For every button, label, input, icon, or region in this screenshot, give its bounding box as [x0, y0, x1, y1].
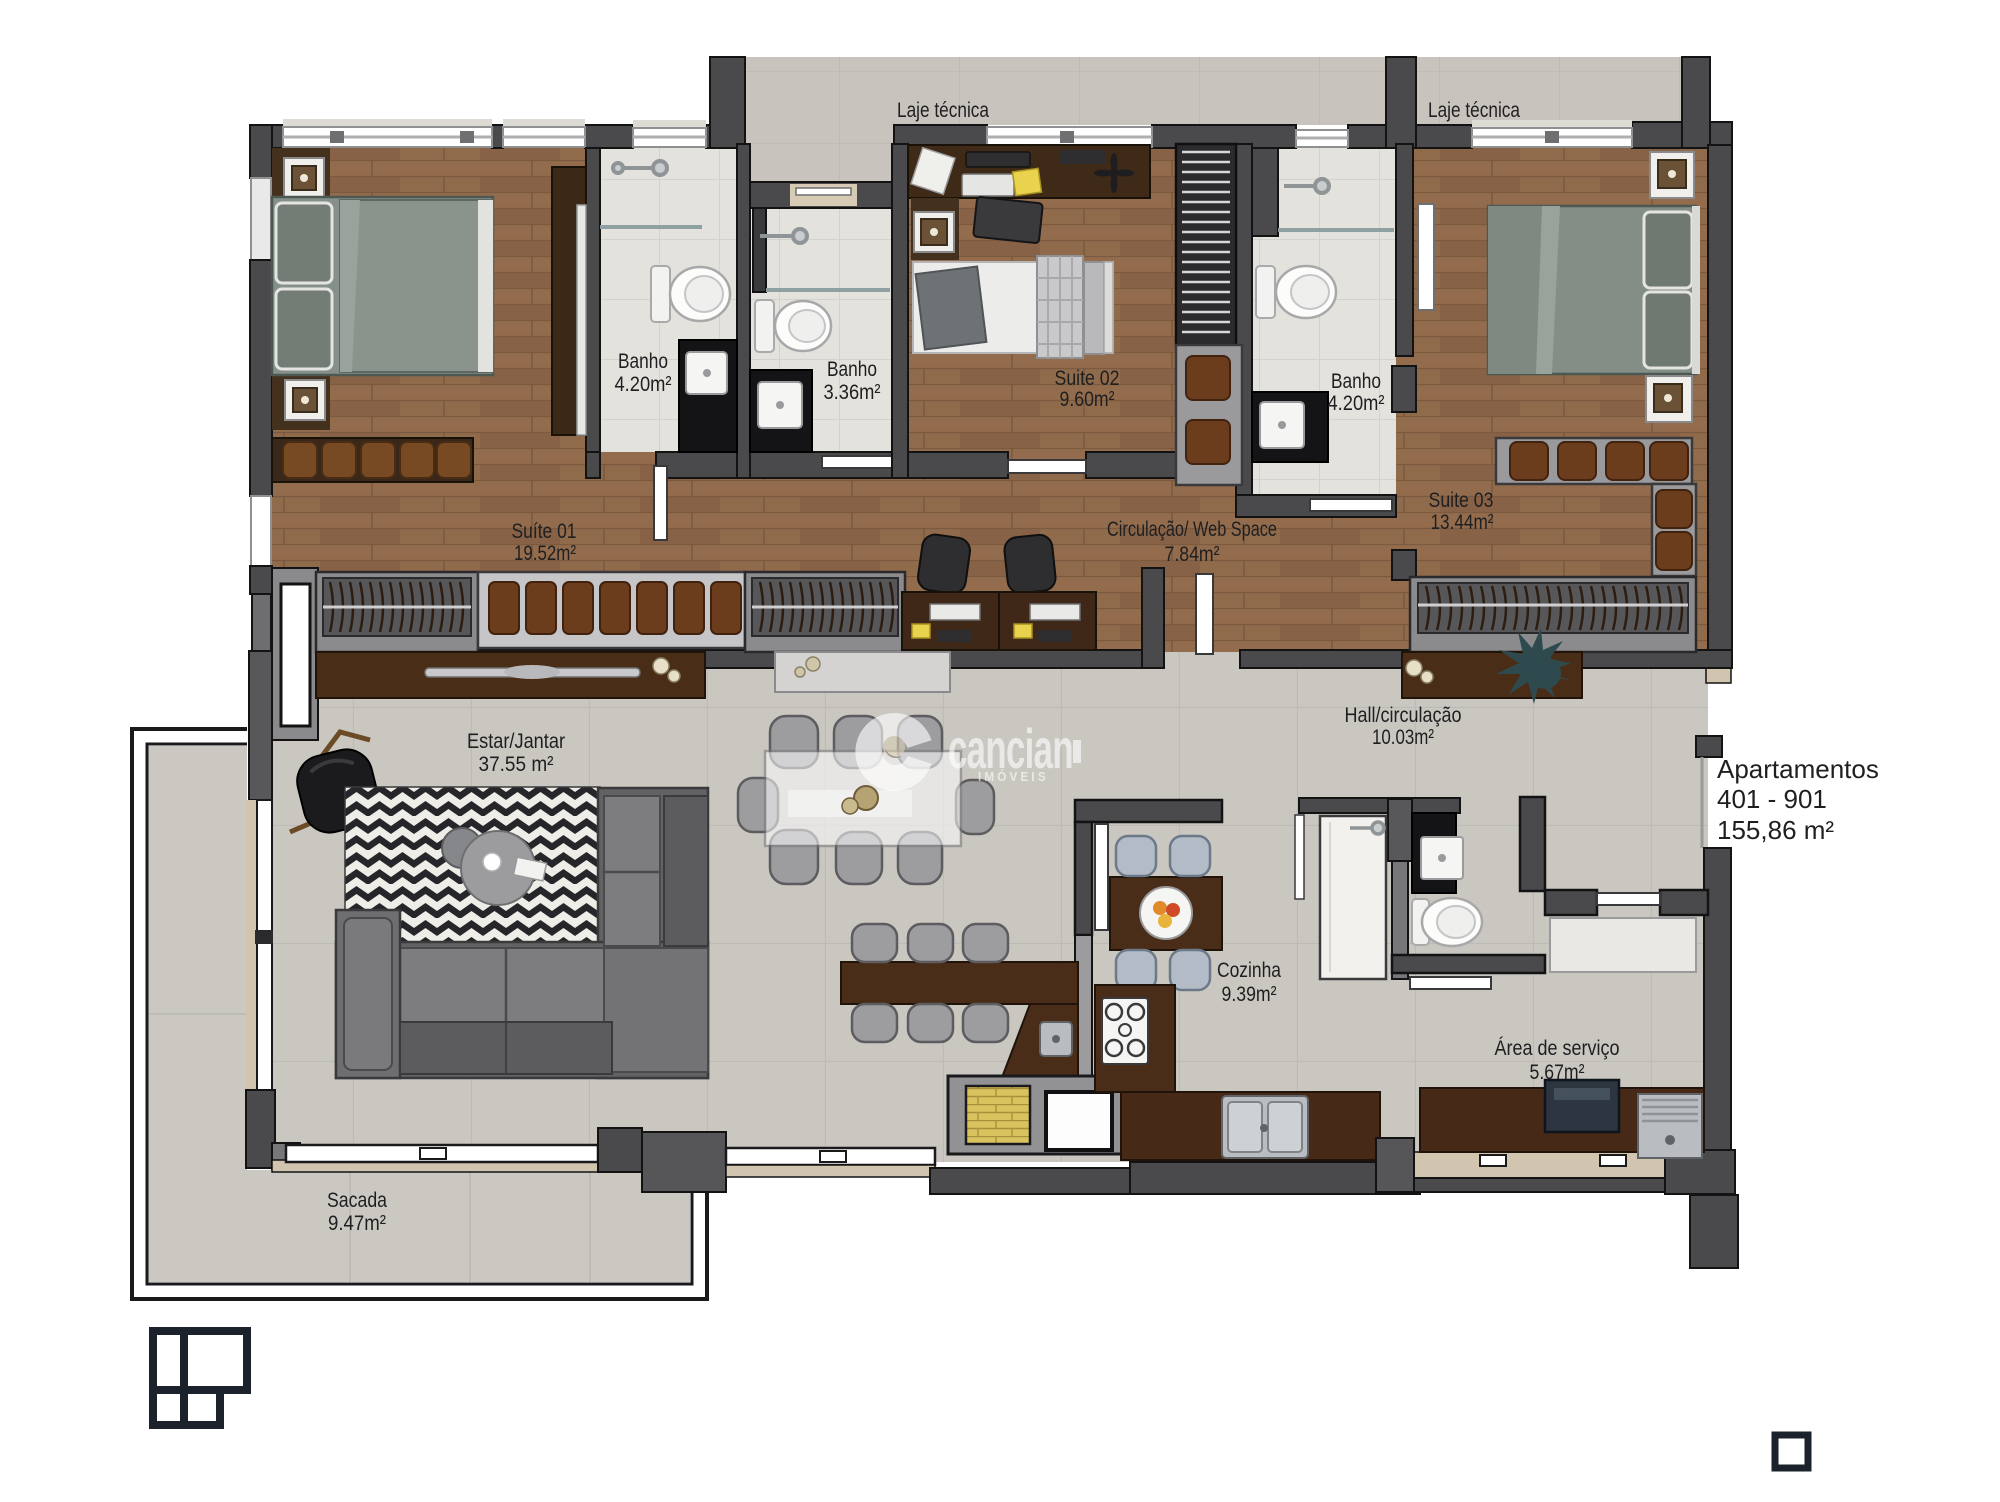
svg-text:Circulação/ Web Space: Circulação/ Web Space	[1107, 518, 1277, 541]
svg-text:4.20m²: 4.20m²	[1328, 392, 1385, 415]
svg-text:Cozinha: Cozinha	[1217, 959, 1281, 982]
svg-text:Banho: Banho	[827, 358, 877, 381]
svg-text:Suite 02: Suite 02	[1055, 367, 1120, 390]
svg-text:Suite 03: Suite 03	[1429, 489, 1494, 512]
svg-text:Suíte 01: Suíte 01	[512, 520, 577, 543]
svg-text:Área de serviço: Área de serviço	[1495, 1037, 1620, 1060]
svg-text:13.44m²: 13.44m²	[1431, 511, 1494, 534]
svg-text:Hall/circulação: Hall/circulação	[1345, 704, 1462, 727]
svg-text:Banho: Banho	[618, 350, 668, 373]
svg-text:7.84m²: 7.84m²	[1165, 543, 1220, 566]
svg-text:3.36m²: 3.36m²	[824, 381, 881, 404]
svg-text:9.39m²: 9.39m²	[1222, 983, 1277, 1006]
svg-text:9.60m²: 9.60m²	[1060, 388, 1115, 411]
svg-text:5.67m²: 5.67m²	[1530, 1061, 1585, 1084]
svg-text:19.52m²: 19.52m²	[514, 542, 576, 565]
svg-text:155,86 m²: 155,86 m²	[1717, 815, 1834, 845]
svg-text:Laje técnica: Laje técnica	[1428, 99, 1520, 122]
svg-text:4.20m²: 4.20m²	[615, 373, 672, 396]
svg-text:Apartamentos: Apartamentos	[1717, 754, 1879, 784]
svg-text:10.03m²: 10.03m²	[1372, 726, 1434, 749]
svg-text:IMÓVEIS: IMÓVEIS	[978, 768, 1049, 784]
svg-text:37.55 m²: 37.55 m²	[479, 753, 554, 776]
svg-text:Estar/Jantar: Estar/Jantar	[467, 730, 565, 753]
svg-text:401 - 901: 401 - 901	[1717, 784, 1827, 814]
svg-text:Laje técnica: Laje técnica	[897, 99, 989, 122]
svg-text:9.47m²: 9.47m²	[328, 1212, 386, 1235]
svg-text:Sacada: Sacada	[327, 1189, 387, 1212]
svg-text:Banho: Banho	[1331, 370, 1381, 393]
